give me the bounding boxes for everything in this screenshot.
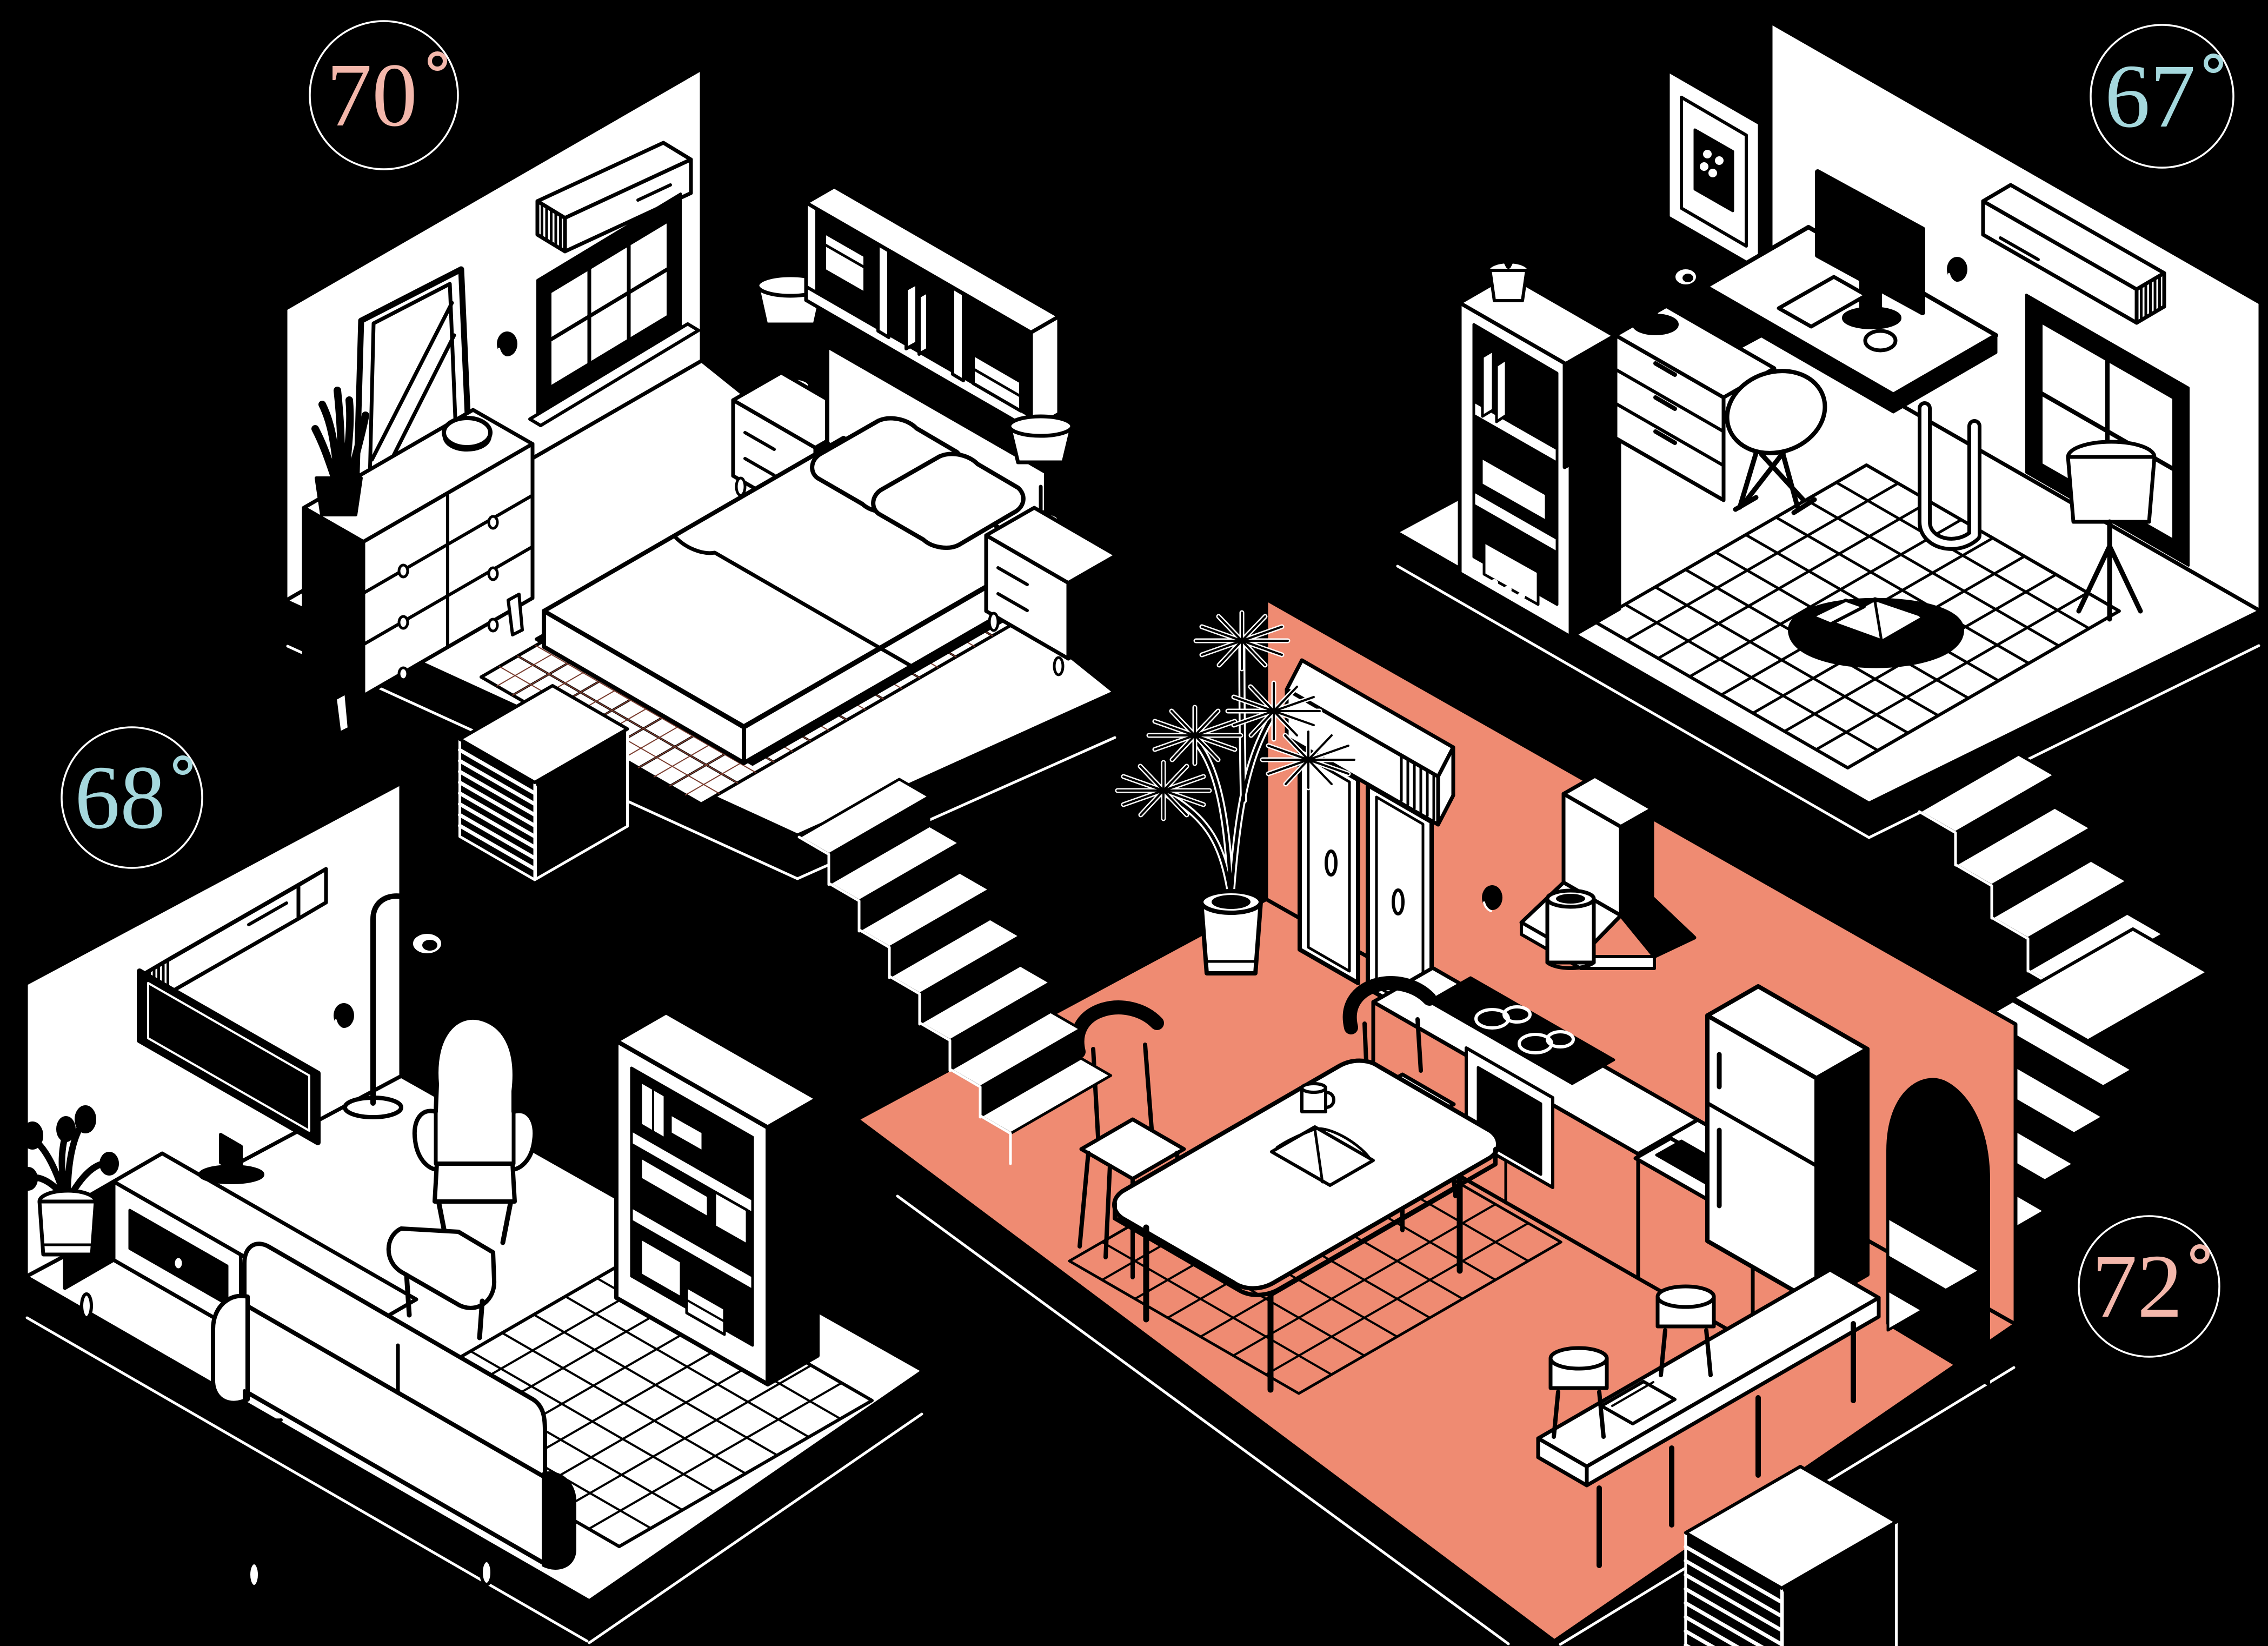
svg-text:68: 68 [75, 747, 165, 848]
svg-text:72: 72 [2092, 1236, 2183, 1337]
svg-text:67: 67 [2105, 46, 2196, 147]
svg-text:70: 70 [327, 45, 417, 145]
